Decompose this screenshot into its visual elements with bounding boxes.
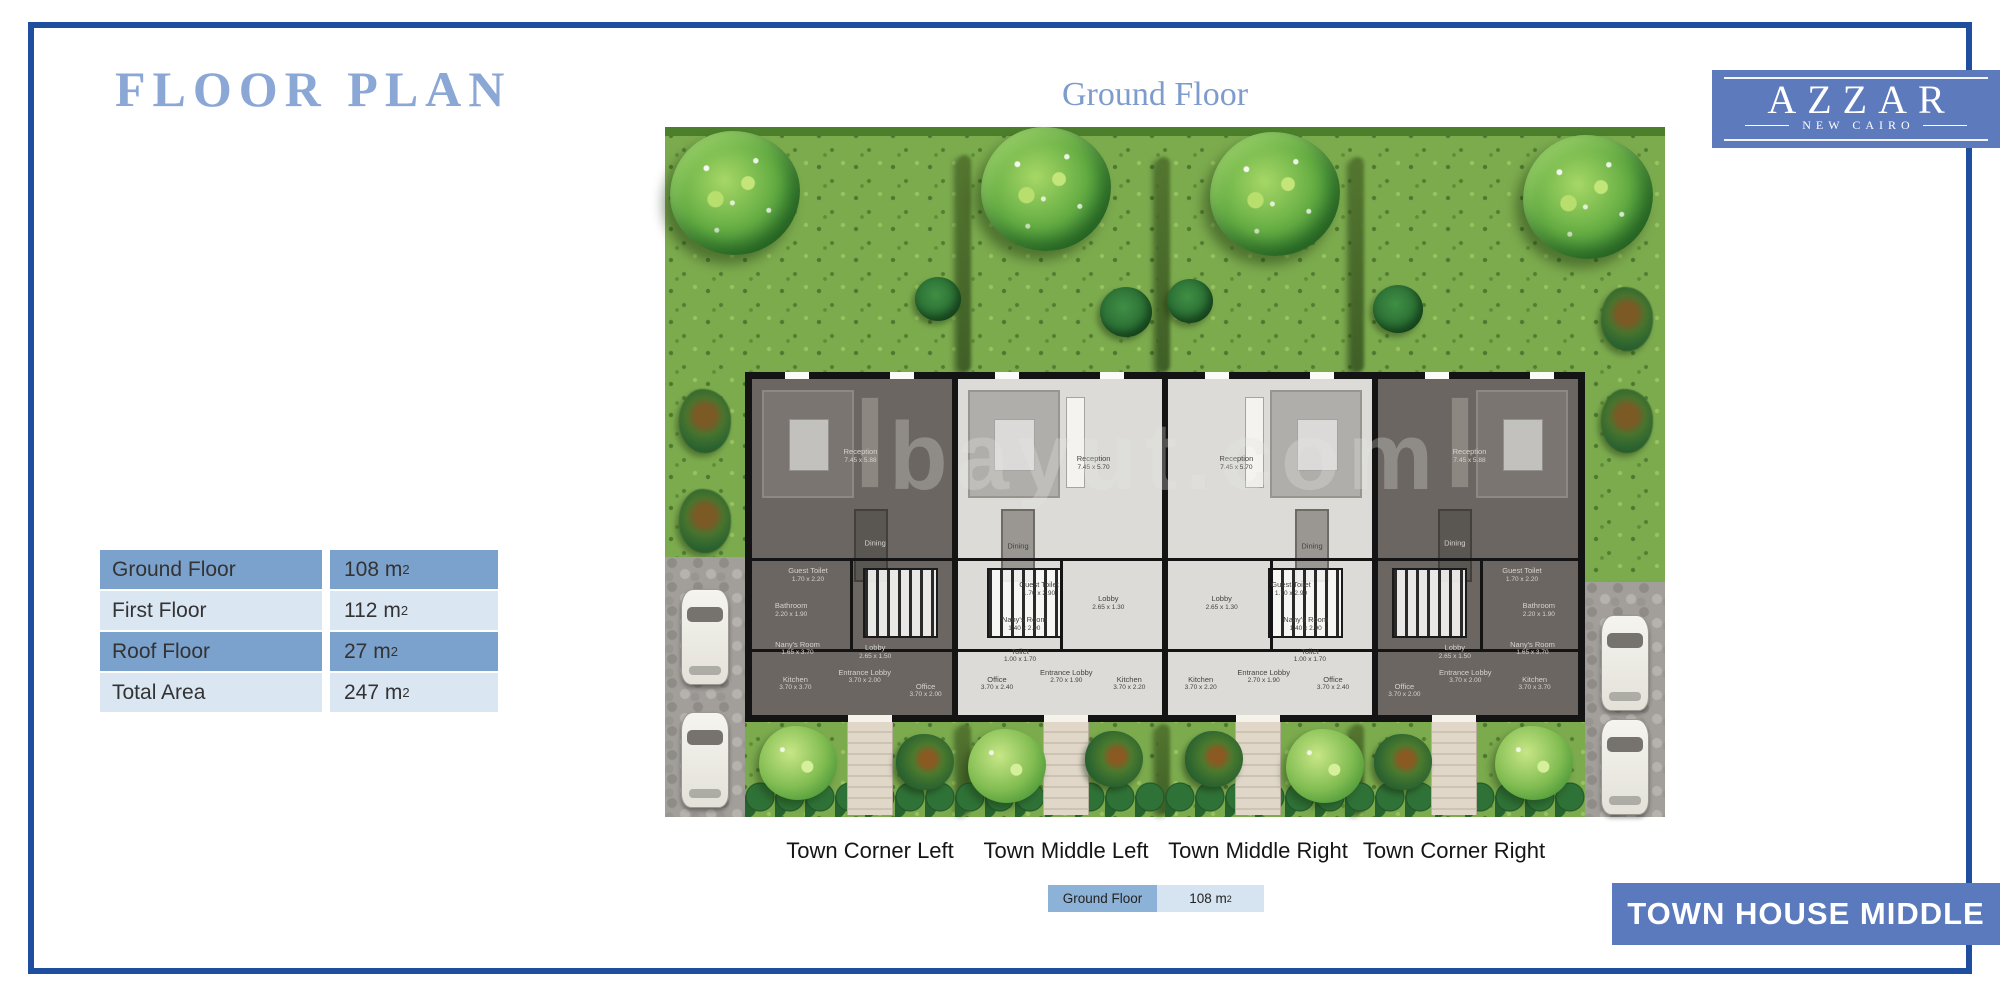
hedge-icon [1351,157,1364,372]
hedge-icon [1157,157,1170,372]
room-label: Bathroom2.20 x 1.90 [775,602,808,618]
room-label: Kitchen3.70 x 2.20 [1113,675,1145,691]
unit-label-town-middle-left: Town Middle Left [983,838,1148,864]
floor-area: 27 m2 [330,632,498,671]
room-label: Lobby2.65 x 1.50 [859,644,891,660]
room-labels: Reception7.45 x 5.88DiningGuest Toilet1.… [1375,372,1585,722]
car-icon [681,712,729,808]
logo-location-row: NEW CAIRO [1712,118,2000,133]
floor-label: Roof Floor [100,632,322,671]
room-label: Dining [1007,543,1028,552]
unit-town-corner-left: Reception7.45 x 5.88DiningGuest Toilet1.… [745,372,955,722]
unit-label-town-corner-right: Town Corner Right [1363,838,1545,864]
room-label: Guest Toilet1.70 x 2.90 [1019,581,1058,597]
room-label: Kitchen3.70 x 2.20 [1185,675,1217,691]
floor-legend: Ground Floor 108 m2 [1048,885,1264,912]
logo-brand: AZZAR [1712,78,2000,122]
site-plan: Reception7.45 x 5.88DiningGuest Toilet1.… [665,127,1665,817]
room-label: Entrance Lobby2.70 x 1.90 [1237,668,1290,684]
lawn-top-edge [665,127,1665,136]
entrance-walkway [1235,722,1281,815]
floor-area: 247 m2 [330,673,498,712]
area-unit: m [385,558,403,582]
unit-town-corner-right: Reception7.45 x 5.88DiningGuest Toilet1.… [1375,372,1585,722]
room-label: Bathroom2.20 x 1.90 [1523,602,1556,618]
entrance-walkway [1431,722,1477,815]
bush-icon [1495,726,1573,800]
floor-label: First Floor [100,591,322,630]
logo-rule-bottom [1724,139,1988,141]
room-labels: Reception7.45 x 5.70DiningGuest Toilet1.… [1165,372,1375,722]
room-label: Entrance Lobby3.70 x 2.00 [838,668,891,684]
room-label: Lobby2.65 x 1.30 [1206,595,1238,611]
bush-icon [1185,731,1243,787]
unit-label-town-corner-left: Town Corner Left [786,838,954,864]
logo-location: NEW CAIRO [1797,118,1914,133]
floor-area: 108 m2 [330,550,498,589]
azzar-logo: AZZAR NEW CAIRO [1712,70,2000,148]
bush-icon [896,734,954,790]
room-label: Toilet1.00 x 1.70 [1004,647,1036,663]
car-icon [1601,719,1649,815]
room-label: Lobby2.65 x 1.30 [1092,595,1124,611]
shrub-icon [1601,389,1653,453]
tree-icon [1210,132,1340,256]
table-row: Ground Floor 108 m2 [100,550,498,589]
car-icon [1601,615,1649,711]
room-label: Reception7.45 x 5.88 [1453,448,1487,464]
unit-town-middle-left: Reception7.45 x 5.70DiningGuest Toilet1.… [955,372,1165,722]
room-label: Office3.70 x 2.00 [1388,682,1420,698]
room-label: Entrance Lobby2.70 x 1.90 [1040,668,1093,684]
room-label: Dining [1301,543,1322,552]
area-unit: m [383,599,401,623]
hedge-icon [958,155,971,372]
tree-icon [981,127,1111,251]
shrub-icon [679,489,731,553]
bush-icon [915,277,961,321]
room-label: Office3.70 x 2.40 [981,675,1013,691]
room-label: Reception7.45 x 5.70 [1220,455,1254,471]
room-labels: Reception7.45 x 5.70DiningGuest Toilet1.… [955,372,1165,722]
room-label: Lobby2.65 x 1.50 [1439,644,1471,660]
room-label: Guest Toilet1.70 x 2.90 [1271,581,1310,597]
room-label: Dining [865,539,886,548]
room-label: Kitchen3.70 x 3.70 [779,675,811,691]
area-table: Ground Floor 108 m2 First Floor 112 m2 R… [100,550,498,714]
bush-icon [759,726,837,800]
bush-icon [1286,729,1364,803]
legend-value: 108 m2 [1157,885,1264,912]
area-unit: m [373,640,391,664]
unit-town-middle-right: Reception7.45 x 5.70DiningGuest Toilet1.… [1165,372,1375,722]
floor-label: Ground Floor [100,550,322,589]
room-label: Kitchen3.70 x 3.70 [1519,675,1551,691]
legend-area: 108 [1189,891,1212,906]
room-labels: Reception7.45 x 5.88DiningGuest Toilet1.… [745,372,955,722]
room-label: Reception7.45 x 5.88 [844,448,878,464]
entrance-walkway [1043,722,1089,815]
bush-icon [968,729,1046,803]
page-title: FLOOR PLAN [115,60,511,118]
bush-icon [1374,734,1432,790]
unit-label-town-middle-right: Town Middle Right [1168,838,1348,864]
logo-rule-top [1724,77,1988,79]
room-label: Reception7.45 x 5.70 [1077,455,1111,471]
legend-label: Ground Floor [1048,885,1157,912]
room-label: Nany's Room1.40 x 2.90 [1283,616,1328,632]
floor-area: 112 m2 [330,591,498,630]
room-label: Nany's Room1.40 x 2.90 [1002,616,1047,632]
area-value: 112 [344,599,377,623]
area-value: 108 [344,558,379,582]
room-label: Entrance Lobby3.70 x 2.00 [1439,668,1492,684]
floor-label: Total Area [100,673,322,712]
area-unit: m [385,681,403,705]
room-label: Nany's Room1.65 x 3.70 [775,640,820,656]
legend-unit: m [1216,891,1227,906]
room-label: Nany's Room1.65 x 3.70 [1510,640,1555,656]
room-label: Office3.70 x 2.00 [910,682,942,698]
room-label: Dining [1444,539,1465,548]
area-value: 247 [344,681,379,705]
area-value: 27 [344,640,367,664]
room-label: Guest Toilet1.70 x 2.20 [788,567,827,583]
shrub-icon [679,389,731,453]
floor-heading: Ground Floor [955,76,1355,114]
entrance-walkway [847,722,893,815]
bush-icon [1167,279,1213,323]
logo-dash-right [1923,125,1967,127]
room-label: Guest Toilet1.70 x 2.20 [1502,567,1541,583]
shrub-icon [1601,287,1653,351]
tree-icon [1523,135,1653,259]
table-row: Roof Floor 27 m2 [100,632,498,671]
bush-icon [1100,287,1152,337]
table-row: Total Area 247 m2 [100,673,498,712]
car-icon [681,589,729,685]
bush-icon [1085,731,1143,787]
room-label: Office3.70 x 2.40 [1317,675,1349,691]
room-label: Toilet1.00 x 1.70 [1294,647,1326,663]
bush-icon [1373,285,1423,333]
unit-type-banner: TOWN HOUSE MIDDLE [1612,883,2000,945]
logo-dash-left [1745,125,1789,127]
tree-icon [670,131,800,255]
table-row: First Floor 112 m2 [100,591,498,630]
